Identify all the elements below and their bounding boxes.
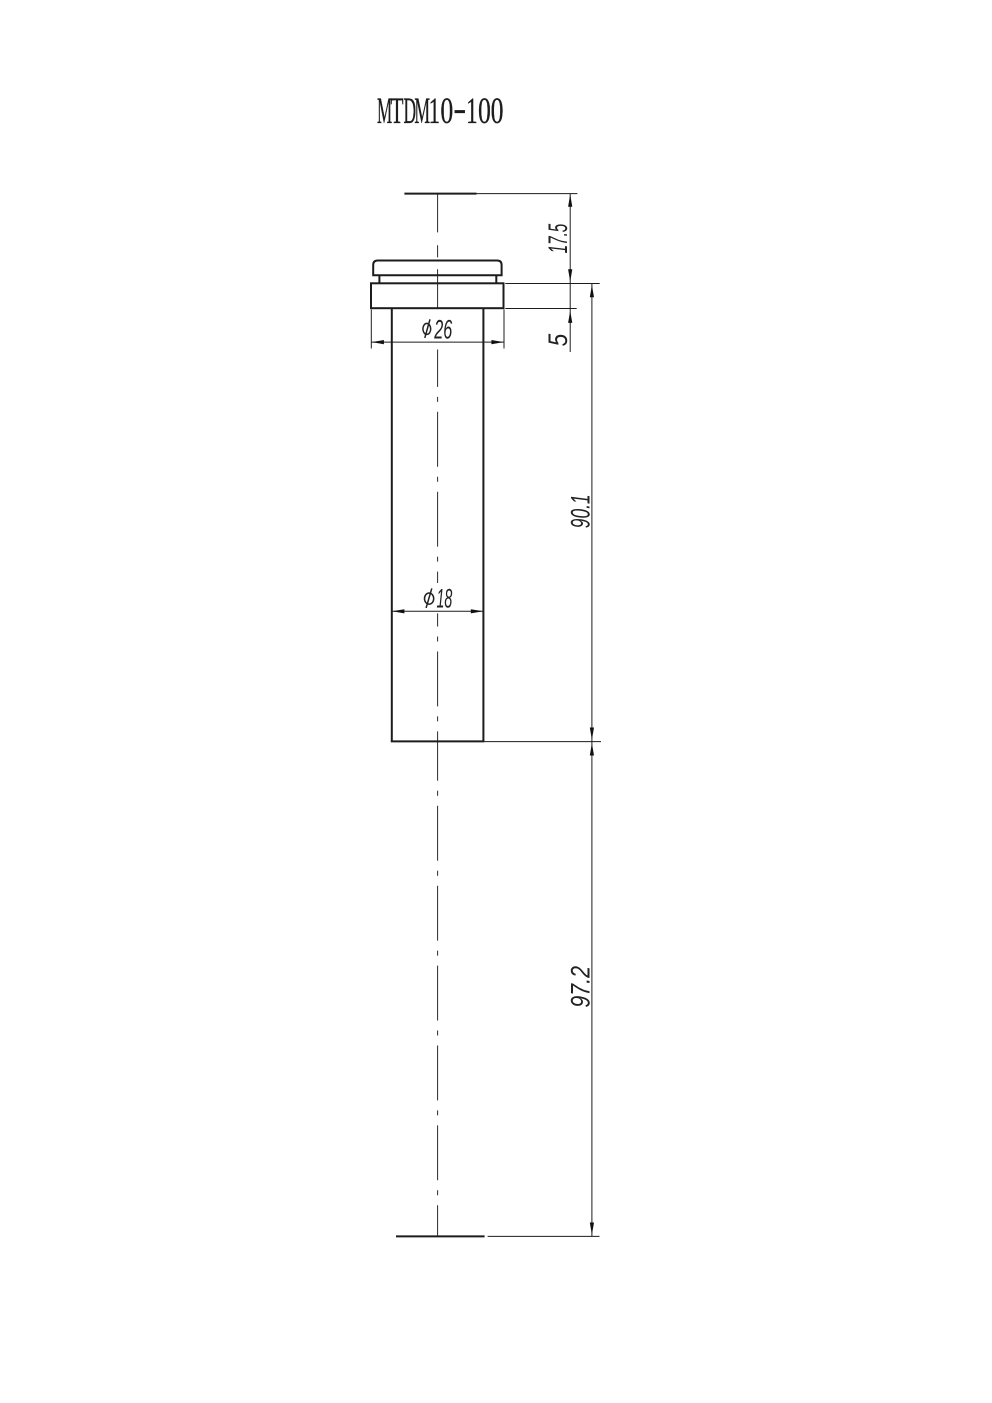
svg-text:26: 26 <box>434 315 453 345</box>
svg-text:1: 1 <box>466 90 478 131</box>
svg-text:97.2: 97.2 <box>566 966 596 1008</box>
svg-text:90.1: 90.1 <box>566 494 596 528</box>
svg-text:0: 0 <box>440 90 453 131</box>
svg-text:1: 1 <box>429 90 441 131</box>
svg-text:17.5: 17.5 <box>543 223 573 253</box>
svg-text:0: 0 <box>491 90 504 131</box>
svg-text:T: T <box>391 90 404 131</box>
svg-text:18: 18 <box>437 584 453 614</box>
svg-text:5: 5 <box>543 333 573 346</box>
svg-text:0: 0 <box>478 90 491 131</box>
svg-text:-: - <box>453 87 466 128</box>
